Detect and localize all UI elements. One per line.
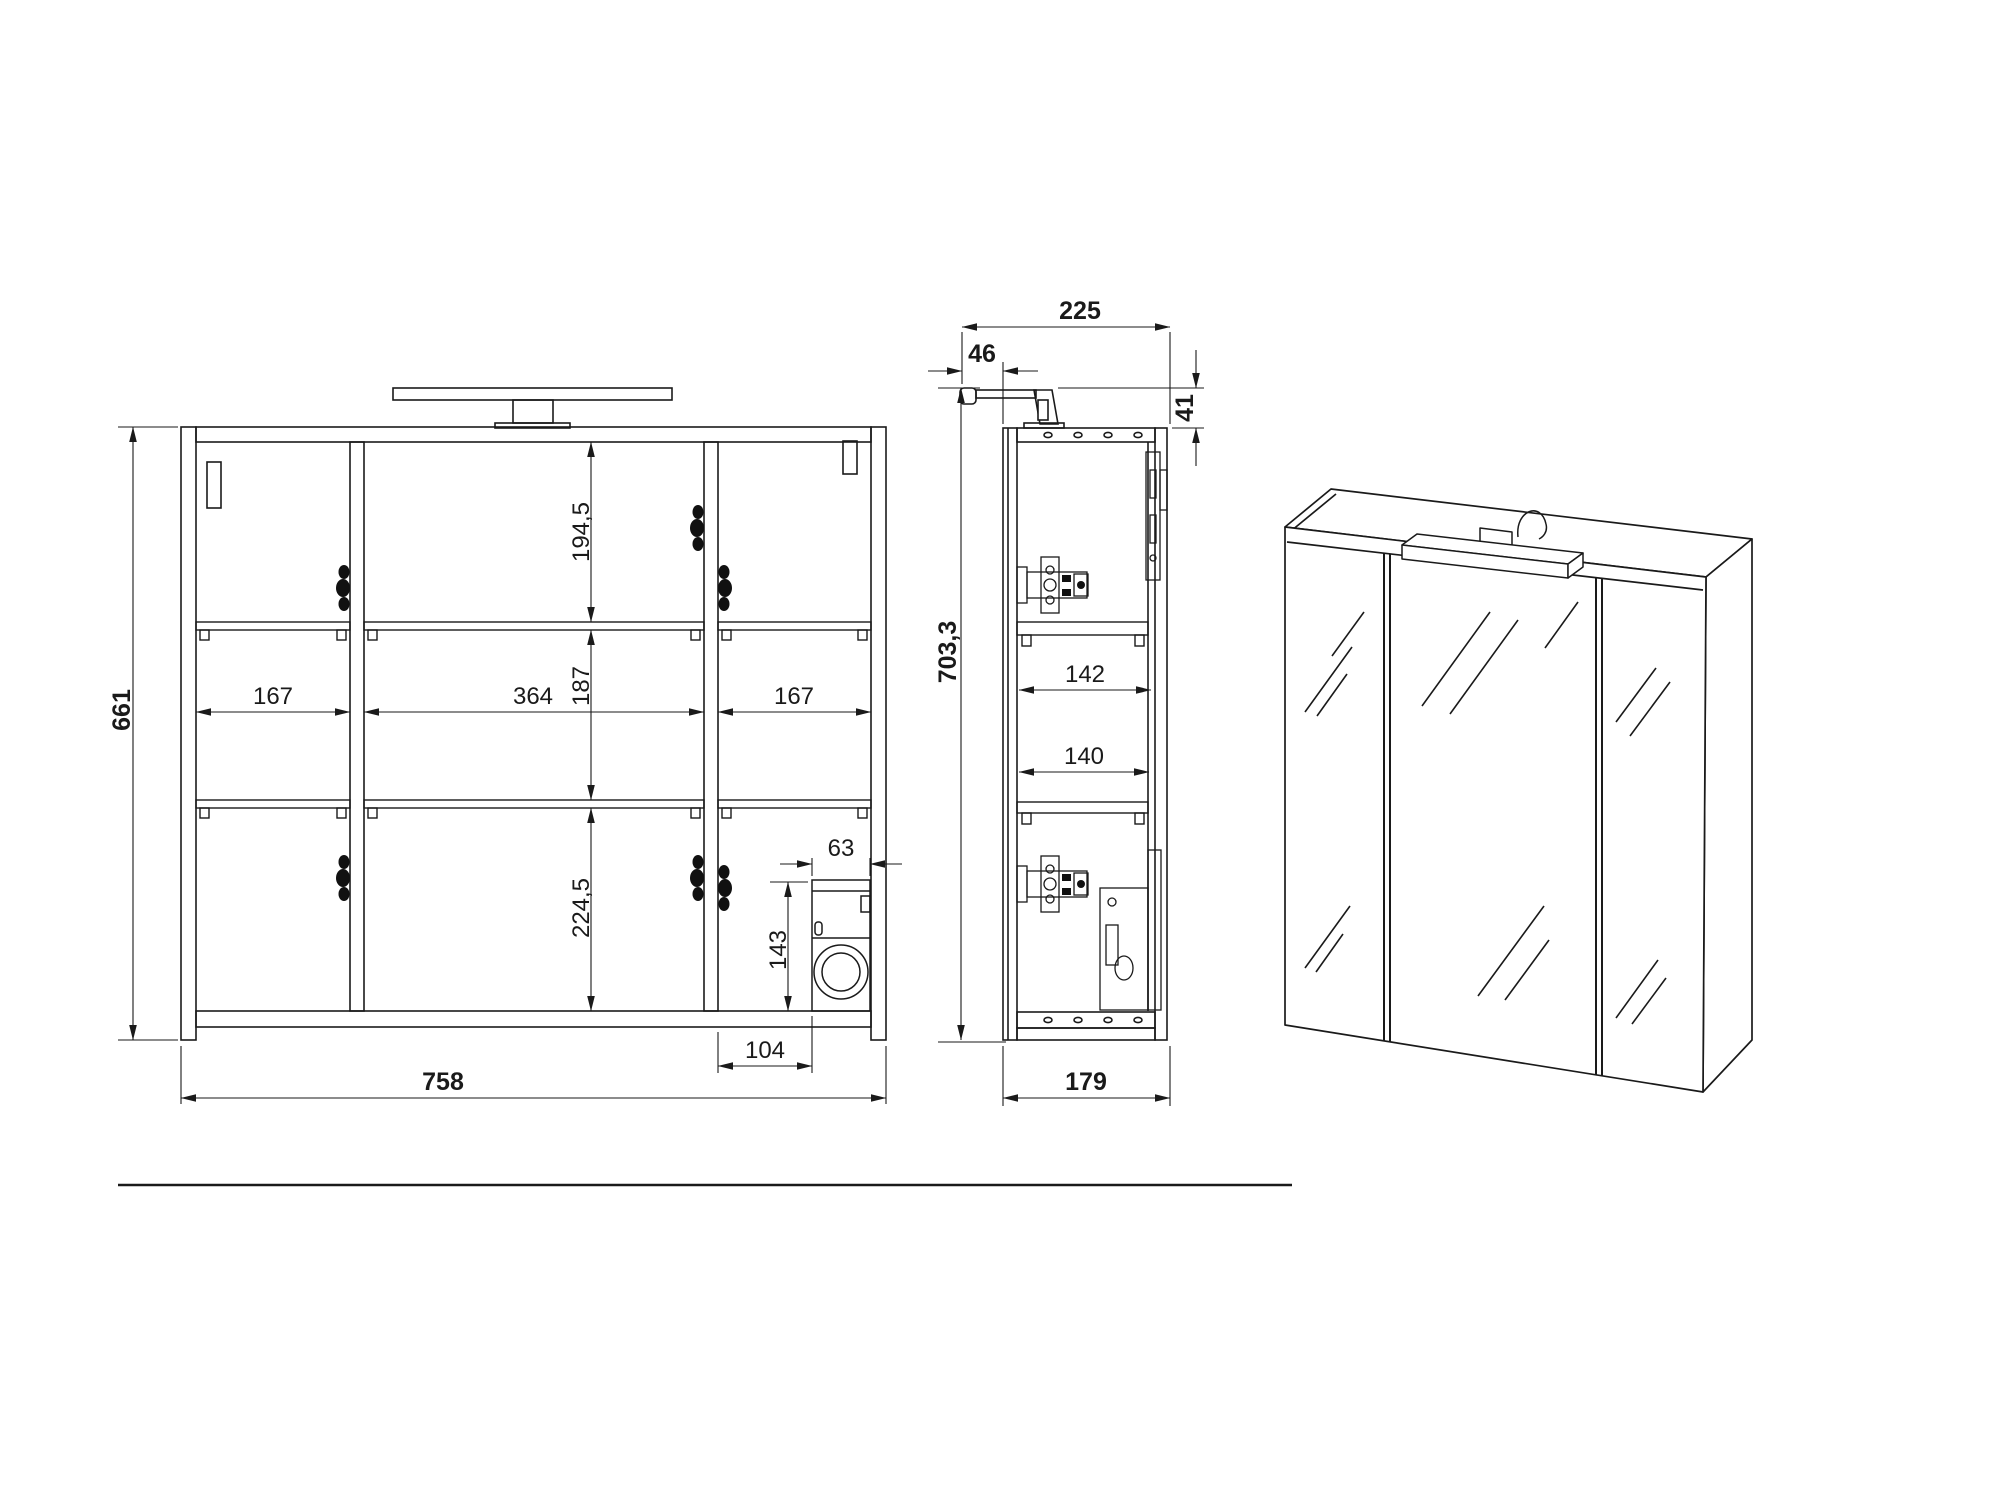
switch-icon [815, 922, 822, 935]
right-side-panel [871, 427, 886, 1040]
dim-socket-box-width: 63 [828, 835, 855, 862]
light-fixture-front [393, 388, 672, 428]
side-dimensions [928, 327, 1204, 1106]
wall-hanger-bottom [1100, 850, 1161, 1010]
socket-box [812, 880, 870, 1011]
wall-bracket-right [843, 441, 857, 474]
dim-middle-section: 187 [568, 666, 595, 706]
front-view: 661 758 167 364 167 194,5 187 224,5 63 1… [108, 388, 902, 1104]
hinge-hardware-icon [1017, 557, 1088, 613]
dim-socket-box-height: 143 [765, 930, 792, 970]
dim-center-compartment: 364 [513, 683, 553, 710]
hinge-icon [690, 505, 704, 551]
light-bar [393, 388, 672, 400]
perspective-view [1285, 489, 1752, 1092]
bottom-panel [196, 1011, 871, 1027]
dim-light-overhang: 46 [968, 340, 996, 368]
cabinet-front-face [1285, 527, 1706, 1092]
dim-left-compartment: 167 [253, 683, 293, 710]
dim-side-depth-body: 179 [1065, 1068, 1107, 1096]
dim-shelf-depth-upper: 142 [1065, 661, 1105, 688]
dim-side-depth-total: 225 [1059, 297, 1101, 325]
hinge-icon [718, 865, 732, 911]
dim-bottom-section: 224,5 [568, 878, 595, 938]
dim-front-height: 661 [108, 689, 136, 731]
hinge-icon [336, 855, 350, 901]
dim-side-total-height: 703,3 [934, 621, 962, 684]
socket-icon-inner [822, 953, 860, 991]
light-fixture-side [960, 388, 1064, 428]
dim-shelf-depth-lower: 140 [1064, 743, 1104, 770]
wall-hanger-top [1146, 452, 1167, 580]
dim-right-compartment: 167 [774, 683, 814, 710]
dim-front-width: 758 [422, 1068, 464, 1096]
dim-socket-box-offset: 104 [745, 1037, 785, 1064]
wall-bracket-left [207, 462, 221, 508]
partition-left [350, 442, 364, 1011]
light-stem [513, 400, 553, 423]
hinge-icon [336, 565, 350, 611]
side-carcass [1003, 428, 1167, 1040]
left-side-panel [181, 427, 196, 1040]
front-shelves [196, 622, 871, 818]
side-view: 225 46 41 703,3 142 140 179 [928, 297, 1204, 1106]
mirror-door-section [1003, 428, 1017, 1040]
dim-top-section: 194,5 [568, 502, 595, 562]
partition-right [704, 442, 718, 1011]
side-shelves [1017, 622, 1148, 824]
hinge-icon [718, 565, 732, 611]
hinge-icon [690, 855, 704, 901]
top-panel [196, 427, 871, 442]
cabinet-side-face [1703, 539, 1752, 1092]
dim-light-height: 41 [1171, 394, 1199, 422]
technical-drawing-page: 661 758 167 364 167 194,5 187 224,5 63 1… [0, 0, 2000, 1499]
front-dimensions [118, 427, 902, 1104]
